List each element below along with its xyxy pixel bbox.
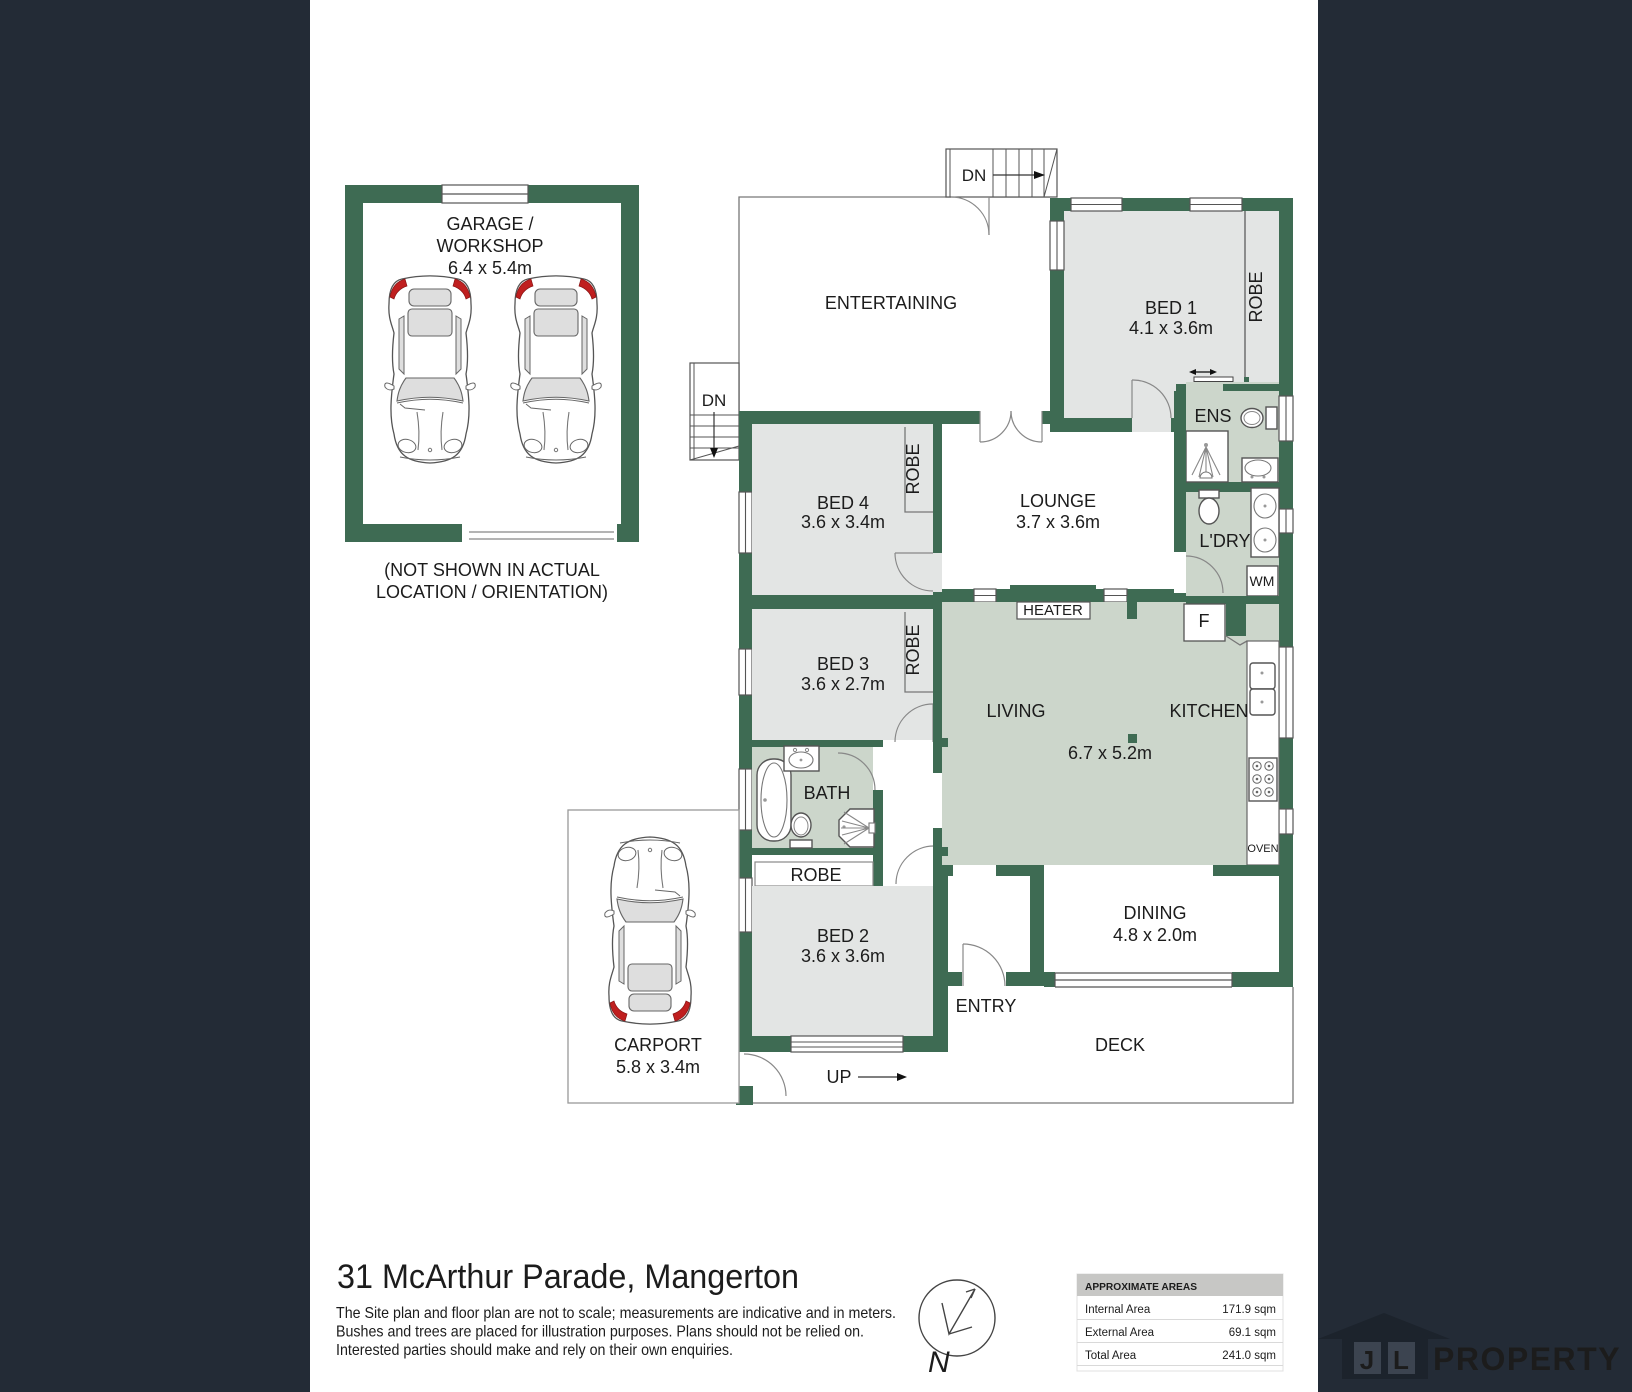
svg-text:Total Area: Total Area xyxy=(1085,1350,1137,1362)
svg-text:ROBE: ROBE xyxy=(1246,271,1266,322)
svg-text:4.1 x 3.6m: 4.1 x 3.6m xyxy=(1129,318,1213,338)
svg-text:GARAGE /: GARAGE / xyxy=(446,214,533,234)
svg-text:L'DRY: L'DRY xyxy=(1199,531,1250,551)
svg-text:ROBE: ROBE xyxy=(903,624,923,675)
svg-text:171.9 sqm: 171.9 sqm xyxy=(1222,1304,1276,1316)
svg-text:KITCHEN: KITCHEN xyxy=(1169,701,1248,721)
svg-text:HEATER: HEATER xyxy=(1023,602,1083,619)
svg-text:DN: DN xyxy=(962,166,987,185)
svg-text:DECK: DECK xyxy=(1095,1035,1145,1055)
svg-text:LIVING: LIVING xyxy=(986,701,1045,721)
svg-text:6.4 x 5.4m: 6.4 x 5.4m xyxy=(448,258,532,278)
svg-text:BED 4: BED 4 xyxy=(817,493,869,513)
svg-text:J: J xyxy=(1360,1345,1374,1375)
svg-text:BATH: BATH xyxy=(804,783,851,803)
svg-text:ENTRY: ENTRY xyxy=(956,996,1017,1016)
svg-text:(NOT SHOWN IN ACTUAL: (NOT SHOWN IN ACTUAL xyxy=(384,560,600,580)
svg-text:4.8 x 2.0m: 4.8 x 2.0m xyxy=(1113,925,1197,945)
svg-text:ENS: ENS xyxy=(1194,406,1231,426)
svg-text:3.6 x 3.4m: 3.6 x 3.4m xyxy=(801,512,885,532)
svg-text:Interested parties should make: Interested parties should make and rely … xyxy=(336,1342,733,1359)
svg-text:The Site plan and floor plan a: The Site plan and floor plan are not to … xyxy=(336,1305,896,1322)
svg-text:CARPORT: CARPORT xyxy=(614,1035,702,1055)
svg-text:UP: UP xyxy=(826,1067,851,1087)
svg-text:3.6 x 2.7m: 3.6 x 2.7m xyxy=(801,674,885,694)
svg-text:ENTERTAINING: ENTERTAINING xyxy=(825,293,957,313)
svg-text:3.6 x 3.6m: 3.6 x 3.6m xyxy=(801,946,885,966)
svg-text:LOUNGE: LOUNGE xyxy=(1020,491,1096,511)
svg-text:6.7 x 5.2m: 6.7 x 5.2m xyxy=(1068,743,1152,763)
svg-text:LOCATION / ORIENTATION): LOCATION / ORIENTATION) xyxy=(376,582,608,602)
svg-text:APPROXIMATE AREAS: APPROXIMATE AREAS xyxy=(1085,1281,1197,1293)
svg-text:ROBE: ROBE xyxy=(790,865,841,885)
svg-text:WORKSHOP: WORKSHOP xyxy=(436,236,543,256)
svg-text:OVEN: OVEN xyxy=(1247,843,1278,855)
svg-text:DINING: DINING xyxy=(1124,903,1187,923)
svg-text:Internal Area: Internal Area xyxy=(1085,1304,1151,1316)
svg-text:31 McArthur Parade, Mangerton: 31 McArthur Parade, Mangerton xyxy=(337,1258,799,1296)
svg-text:BED 2: BED 2 xyxy=(817,926,869,946)
svg-text:5.8 x 3.4m: 5.8 x 3.4m xyxy=(616,1057,700,1077)
svg-text:BED 3: BED 3 xyxy=(817,654,869,674)
svg-text:241.0 sqm: 241.0 sqm xyxy=(1222,1350,1276,1362)
svg-text:External Area: External Area xyxy=(1085,1327,1155,1339)
svg-text:69.1 sqm: 69.1 sqm xyxy=(1229,1327,1276,1339)
svg-text:Bushes and trees are placed fo: Bushes and trees are placed for illustra… xyxy=(336,1324,864,1341)
svg-text:3.7 x 3.6m: 3.7 x 3.6m xyxy=(1016,512,1100,532)
svg-text:ROBE: ROBE xyxy=(903,443,923,494)
svg-text:N: N xyxy=(928,1346,950,1379)
svg-text:BED 1: BED 1 xyxy=(1145,298,1197,318)
svg-text:PROPERTY: PROPERTY xyxy=(1433,1341,1621,1377)
svg-text:F: F xyxy=(1199,611,1210,631)
svg-text:WM: WM xyxy=(1250,573,1275,589)
svg-text:DN: DN xyxy=(702,391,727,410)
svg-text:L: L xyxy=(1393,1345,1409,1375)
